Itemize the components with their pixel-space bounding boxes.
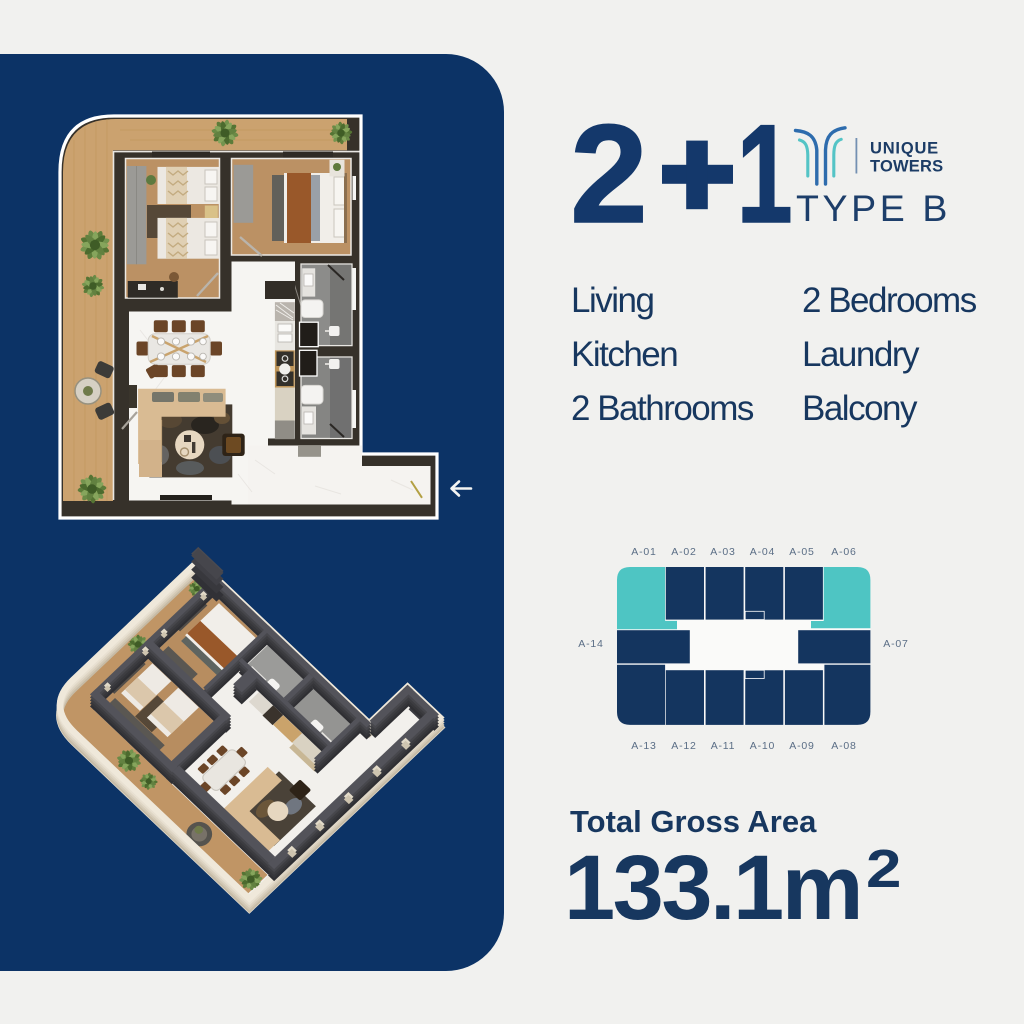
- svg-text:A-13: A-13: [631, 740, 656, 752]
- svg-text:A-06: A-06: [831, 546, 856, 558]
- svg-text:133.1m: 133.1m: [564, 837, 861, 939]
- svg-text:Living: Living: [571, 281, 653, 320]
- svg-text:1: 1: [737, 96, 793, 252]
- svg-text:A-14: A-14: [578, 638, 603, 650]
- svg-text:Balcony: Balcony: [802, 389, 918, 428]
- svg-text:A-08: A-08: [831, 740, 856, 752]
- svg-text:UNIQUE: UNIQUE: [870, 140, 939, 158]
- svg-text:A-12: A-12: [671, 740, 696, 752]
- svg-text:Laundry: Laundry: [802, 335, 920, 374]
- svg-text:A-05: A-05: [789, 546, 814, 558]
- svg-text:A-02: A-02: [671, 546, 696, 558]
- svg-text:2 Bathrooms: 2 Bathrooms: [571, 389, 754, 428]
- svg-text:TOWERS: TOWERS: [870, 158, 943, 176]
- svg-text:A-07: A-07: [883, 638, 908, 650]
- svg-text:A-03: A-03: [710, 546, 735, 558]
- svg-text:A-09: A-09: [789, 740, 814, 752]
- svg-text:Kitchen: Kitchen: [571, 335, 677, 374]
- svg-text:TYPE B: TYPE B: [796, 187, 951, 229]
- svg-text:2 Bedrooms: 2 Bedrooms: [802, 281, 977, 320]
- svg-text:A-01: A-01: [631, 546, 656, 558]
- svg-text:A-10: A-10: [750, 740, 775, 752]
- svg-text:2: 2: [570, 95, 648, 252]
- svg-text:A-04: A-04: [750, 546, 775, 558]
- svg-text:2: 2: [866, 839, 901, 899]
- svg-text:Total Gross Area: Total Gross Area: [570, 804, 817, 839]
- svg-text:A-11: A-11: [711, 740, 736, 752]
